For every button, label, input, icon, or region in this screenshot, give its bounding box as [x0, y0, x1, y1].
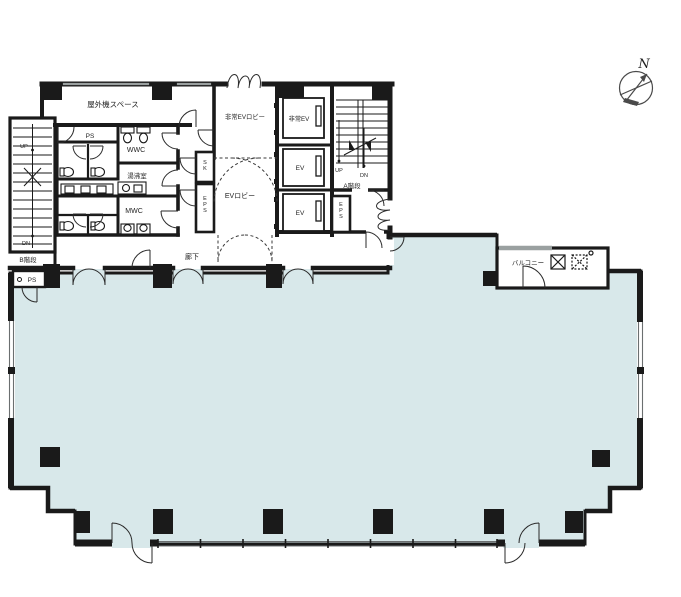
label-compass-n: N — [637, 57, 650, 72]
label-stair-b-dn: DN — [22, 241, 30, 247]
label-emergency-ev-lobby: 非常EVロビー — [225, 112, 265, 121]
label-ps-lower: PS — [28, 277, 37, 284]
label-kitchenette: 湯沸室 — [127, 171, 147, 180]
label-sk: SK — [202, 160, 208, 172]
label-ev-2: EV — [296, 210, 305, 217]
label-ps-upper: PS — [86, 133, 95, 140]
label-stair-b-up: UP — [20, 144, 28, 150]
label-wwc: WWC — [127, 147, 145, 154]
balcony — [497, 248, 608, 288]
label-outdoor-unit-space: 屋外機スペース — [87, 99, 139, 109]
floor-plan-page: 屋外機スペース PS WWC 湯沸室 MWC B階段 UP DN 廊下 非常EV… — [0, 0, 681, 597]
label-stair-b: B階段 — [19, 255, 37, 264]
label-mwc: MWC — [125, 208, 143, 215]
label-emergency-ev: 非常EV — [289, 115, 311, 123]
label-ev-lobby: EVロビー — [225, 191, 255, 200]
floor-plan-drawing: 屋外機スペース PS WWC 湯沸室 MWC B階段 UP DN 廊下 非常EV… — [0, 0, 681, 597]
label-stair-a-up: UP — [335, 168, 343, 174]
label-stair-a: A階段 — [343, 181, 361, 190]
label-eps-left: EPS — [202, 196, 208, 214]
label-eps-right: EPS — [338, 202, 344, 220]
stair-b — [10, 118, 55, 252]
label-balcony: バルコニー — [512, 259, 544, 267]
label-stair-a-dn: DN — [360, 173, 368, 179]
label-corridor: 廊下 — [185, 252, 199, 261]
label-ev-1: EV — [296, 165, 305, 172]
